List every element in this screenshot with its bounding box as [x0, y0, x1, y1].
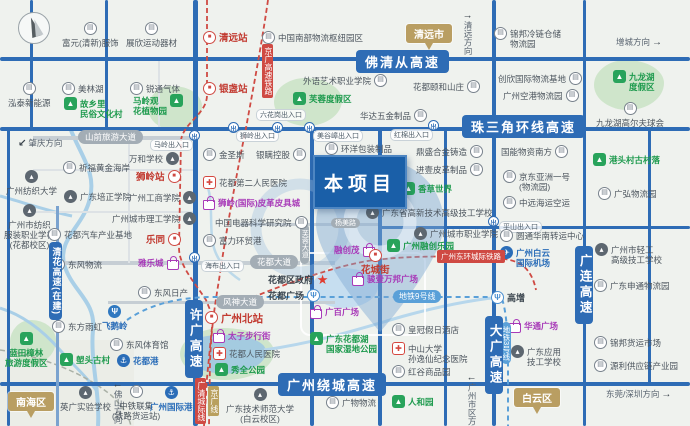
map-poi: ⚓花都港: [117, 354, 159, 367]
highway-label: 清花高速(在建): [49, 242, 62, 320]
factory-icon: ▤: [594, 359, 607, 372]
road-label: 芙蓉大道: [300, 224, 309, 264]
direction-text: 肇庆方向: [28, 137, 62, 149]
hosp-icon: ✚: [213, 347, 226, 360]
poi-label: 九龙湖高尔夫球会: [596, 118, 664, 128]
map-poi: ▲秀全公园: [215, 363, 265, 376]
direction-label: 东莞/深圳方向→: [606, 388, 671, 400]
factory-icon: ▤: [598, 187, 611, 200]
poi-label: 圆通华南转运中心: [516, 231, 584, 241]
map-poi: ▤外语艺术职业学院: [303, 74, 387, 87]
poi-label: 芙蓉度假区: [309, 94, 352, 104]
factory-icon: ▤: [594, 279, 607, 292]
poi-label: 锦邦货运市场: [610, 338, 661, 348]
poi-label: 蓝田樟林 旅游度假区: [5, 348, 48, 368]
exit-icon: 出: [304, 122, 315, 133]
bag-icon: [213, 333, 225, 343]
poi-label: 广东花都湖 国家湿地公园: [326, 334, 377, 354]
factory-icon: ▤: [138, 286, 151, 299]
exit-label: 红棉出入口: [390, 129, 433, 141]
poi-label: 中国南部物流枢纽园区: [278, 33, 363, 43]
map-poi: ▴广州城市理工学院: [112, 212, 196, 225]
poi-label: 广州工商学院: [129, 193, 180, 203]
map-poi: 狮岭(国际)皮革皮具城: [203, 196, 300, 210]
poi-label: 花都区政府: [268, 275, 313, 286]
factory-icon: ▤: [555, 145, 568, 158]
poi-label: 中远海运空运: [519, 198, 570, 208]
poi-label: 银瞒控股: [256, 150, 290, 160]
poi-label: 富力环贸港: [219, 236, 262, 246]
direction-arrow-icon: →: [661, 389, 671, 400]
factory-icon: ▤: [494, 27, 507, 40]
map-poi: ✚中山大学 孙逸仙纪念医院: [392, 342, 468, 364]
factory-icon: ▤: [130, 385, 143, 398]
direction-arrow-icon: →: [652, 37, 662, 48]
poi-label: 祈福黄金海岸: [79, 163, 130, 173]
factory-icon: ▤: [392, 323, 405, 336]
metro-station-icon: Ψ: [307, 289, 320, 302]
exit-label: 六花岗出入口: [256, 109, 306, 121]
exit-label: 狮岭出入口: [236, 130, 279, 142]
map-poi: ▲港头村古村落: [593, 153, 660, 166]
map-poi: ▤锦邦货运市场: [594, 336, 661, 349]
map-poi: ■清远站: [203, 31, 248, 44]
exit-label: 马岭出入口: [150, 139, 193, 151]
map-poi: ▤红谷商品园: [392, 365, 451, 378]
factory-icon: ▤: [470, 163, 483, 176]
star-icon: ★: [316, 273, 329, 286]
map-poi: ▤中远海运空运: [503, 196, 570, 209]
poi-label: 清远站: [219, 33, 248, 44]
map-poi: ▤源利供应链产业园: [594, 359, 678, 372]
tree-icon: ▲: [310, 332, 323, 345]
poi-label: 雅乐城: [138, 258, 164, 268]
factory-icon: ▤: [262, 31, 275, 44]
map-poi: ▤广州空港物流园: [503, 89, 579, 102]
poi-label: 进壹皮革制品: [416, 165, 467, 175]
poi-label: 花都港: [133, 356, 159, 366]
poi-label: 创欣国际物流基地: [498, 74, 566, 84]
rail-station-icon: ■: [168, 233, 181, 246]
highway-label: 许广高速: [185, 300, 203, 378]
poi-label: 香草世界: [418, 184, 452, 194]
factory-icon: ▤: [48, 228, 61, 241]
map-poi: ▤广东申通物流园: [594, 279, 670, 292]
poi-label: 广东应用 技工学校: [527, 347, 561, 367]
map-poi: ▲芙蓉度假区: [293, 92, 352, 105]
map-poi: ▲广东花都湖 国家湿地公园: [310, 332, 377, 354]
factory-icon: ▤: [503, 170, 516, 183]
factory-icon: ▤: [62, 82, 75, 95]
map-poi: ▤创欣国际物流基地: [498, 72, 582, 85]
school-icon: ▴: [595, 243, 608, 256]
direction-arrow-icon: ↓: [466, 376, 477, 381]
map-poi: ▤皇冠假日酒店: [392, 323, 459, 336]
map-poi: Ψ花都广场: [268, 289, 320, 302]
poi-label: 广州融创乐园: [403, 241, 454, 251]
map-poi: Ψ高增: [491, 291, 525, 304]
map-poi: ▴广州纺织大学: [6, 170, 57, 196]
school-icon: ▴: [166, 152, 179, 165]
metro-station-icon: Ψ: [491, 291, 504, 304]
factory-icon: ▤: [566, 89, 579, 102]
map-poi: 骏壹万邦广场: [352, 272, 418, 286]
map-poi: ▤金圣斯: [203, 148, 245, 161]
exit-icon: 出: [189, 130, 200, 141]
highway-label: 珠三角环线高速: [462, 115, 585, 138]
factory-icon: ▤: [326, 396, 339, 409]
school-icon: ▴: [64, 190, 77, 203]
bag-icon: [167, 260, 179, 270]
school-icon: ▴: [25, 170, 38, 183]
map-poi: Ψ飞鹅岭: [102, 305, 128, 331]
map-poi: ▤花都汽车产业基地: [48, 228, 132, 241]
exit-label: 海布出入口: [201, 260, 244, 272]
exit-icon: 出: [272, 122, 283, 133]
city-label: 南海区: [8, 392, 54, 411]
factory-icon: ▤: [63, 161, 76, 174]
factory-icon: ▤: [23, 82, 36, 95]
map-poi: ▴广州工商学院: [129, 191, 196, 204]
map-poi: ▲塱头古村: [60, 353, 110, 366]
highway-label: 广州绕城高速: [278, 373, 386, 396]
location-map: 佛清从高速珠三角环线高速广州绕城高速许广高速大广高速广连高速清花高速(在建)京广…: [0, 0, 690, 426]
railway-label: 广州东环城际铁路: [437, 250, 505, 263]
direction-text: 增城方向: [616, 36, 650, 48]
map-poi: ▴广州市轻工 高级技工学校: [595, 243, 662, 265]
tree-icon: ▲: [60, 353, 73, 366]
road-label: 风神大道: [216, 295, 264, 309]
poi-label: 广州城市理工学院: [112, 214, 180, 224]
exit-icon: 出: [189, 252, 200, 263]
poi-label: 外语艺术职业学院: [303, 76, 371, 86]
map-poi: ▲九龙湖 度假区: [613, 70, 655, 92]
poi-label: 广州城市职业学院: [430, 229, 498, 239]
bag-icon: [352, 276, 364, 286]
factory-icon: ▤: [325, 142, 338, 155]
factory-icon: ▤: [374, 74, 387, 87]
metro-station-icon: Ψ: [108, 305, 121, 318]
factory-icon: ▤: [470, 145, 483, 158]
tree-icon: ▲: [593, 153, 606, 166]
poi-label: 东方雨虹: [68, 322, 102, 332]
direction-label: 增城方向→: [616, 36, 662, 48]
map-poi: ▤东风体育馆: [110, 338, 169, 351]
poi-label: 塱头古村: [76, 355, 110, 365]
poi-label: 美林湖: [78, 84, 104, 94]
poi-label: 广州国际港: [150, 402, 193, 412]
tree-icon: ▲: [613, 70, 626, 83]
map-poi: ▤锦邦冷链仓储 物流园: [494, 27, 561, 49]
map-poi: ▲人和园: [392, 395, 434, 408]
poi-label: 狮岭(国际)皮革皮具城: [218, 198, 300, 208]
bag-icon: [310, 309, 322, 319]
map-poi: ▴广东应用 技工学校: [511, 345, 561, 367]
poi-label: 融创茂: [334, 245, 360, 255]
poi-label: 广弘物流园: [614, 189, 657, 199]
hosp-icon: ✚: [392, 342, 405, 355]
poi-label: 锐通气体: [146, 84, 180, 94]
poi-label: 高增: [507, 293, 525, 304]
poi-label: 广州白云 国际机场: [516, 248, 550, 268]
tree-icon: ▲: [392, 395, 405, 408]
school-icon: ▴: [23, 204, 36, 217]
map-poi: ▤东方雨虹: [52, 320, 102, 333]
tree-icon: ▲: [215, 363, 228, 376]
rail-station-icon: ■: [168, 170, 181, 183]
poi-label: 展欣运动器材: [126, 38, 177, 48]
map-poi: ▤鼎盛合金铸造: [416, 145, 483, 158]
map-poi: ■银盏站: [203, 82, 248, 95]
direction-arrow-icon: ↙: [18, 138, 26, 149]
factory-icon: ▤: [392, 365, 405, 378]
tree-icon: ▲: [293, 92, 306, 105]
direction-arrow-icon: ↑: [462, 14, 473, 19]
railway-label: 京广高速铁路: [262, 44, 273, 98]
factory-icon: ▤: [295, 216, 308, 229]
map-poi: 太子步行街: [213, 329, 271, 343]
road-label: 杨美路: [331, 218, 360, 228]
poi-label: 广物物流: [342, 398, 376, 408]
poi-label: 环洋包装制品: [341, 144, 392, 154]
city-label: 白云区: [514, 388, 560, 407]
highway-label: 佛清从高速: [356, 50, 449, 73]
poi-label: 东风物流: [68, 260, 102, 270]
poi-label: 银盏站: [219, 84, 248, 95]
poi-label: 金圣斯: [219, 150, 245, 160]
map-poi: ⚓广州国际港: [150, 386, 193, 412]
map-poi: ■广州北站: [205, 311, 263, 325]
factory-icon: ▤: [569, 72, 582, 85]
poi-label: 京东亚洲一号 (物流园): [519, 172, 570, 192]
factory-icon: ▤: [203, 234, 216, 247]
factory-icon: ▤: [203, 148, 216, 161]
map-poi: ▤泓泰新能源: [8, 82, 51, 108]
rail-station-icon: ■: [203, 31, 216, 44]
rail-station-icon: ■: [205, 311, 218, 324]
map-poi: ■乐同: [146, 233, 181, 246]
bag-icon: [203, 200, 215, 210]
poi-label: 秀全公园: [231, 365, 265, 375]
poi-label: 飞鹅岭: [102, 321, 128, 331]
school-icon: ▴: [183, 212, 196, 225]
direction-text: 广州市区方向: [467, 383, 476, 426]
poi-label: 华达五金制品: [360, 111, 411, 121]
map-poi: ▲蓝田樟林 旅游度假区: [5, 332, 48, 368]
poi-label: 人和园: [408, 397, 434, 407]
poi-label: 九龙湖 度假区: [629, 72, 655, 92]
map-poi: ▤华达五金制品: [360, 109, 427, 122]
poi-label: 花都颐和山庄: [413, 82, 464, 92]
factory-icon: ▤: [467, 80, 480, 93]
poi-label: 万和学校: [129, 154, 163, 164]
road-label: 山前旅游大道: [78, 130, 143, 144]
exit-icon: 出: [428, 120, 439, 131]
map-poi: ▤环洋包装制品: [325, 142, 392, 155]
project-marker: 本项目: [313, 155, 407, 209]
map-poi: ▴万和学校: [129, 152, 179, 165]
poi-label: 花都第二人民医院: [219, 178, 287, 188]
poi-label: 东风体育馆: [126, 340, 169, 350]
poi-label: 乐同: [146, 235, 165, 246]
poi-label: 锦邦冷链仓储 物流园: [510, 29, 561, 49]
factory-icon: ▤: [52, 320, 65, 333]
map-poi: ▴英广实验学校: [60, 386, 111, 412]
poi-label: 泓泰新能源: [8, 98, 51, 108]
direction-label: ↑清远方向: [462, 14, 473, 55]
map-poi: 华通广场: [509, 319, 558, 333]
map-poi: ▤国能物资南方: [501, 145, 568, 158]
direction-label: ↓广州市区方向: [466, 376, 477, 426]
poi-label: 广州市轻工 高级技工学校: [611, 245, 662, 265]
map-poi: ▤美林湖: [62, 82, 104, 95]
map-poi: ▤花都颐和山庄: [413, 80, 480, 93]
map-poi: ✚花都第二人民医院: [203, 176, 287, 189]
rail-station-icon: ■: [203, 82, 216, 95]
road-label: 花都大道: [250, 255, 298, 269]
map-poi: ▤广弘物流园: [598, 187, 657, 200]
poi-label: 广东培正学院: [80, 192, 131, 202]
compass-icon: [18, 12, 50, 44]
poi-label: 华通广场: [524, 321, 558, 331]
factory-icon: ▤: [145, 22, 158, 35]
map-poi: ▲故乡里 民俗文化村: [64, 97, 123, 119]
map-poi: ▤富力环贸港: [203, 234, 262, 247]
poi-label: 源利供应链产业园: [610, 361, 678, 371]
exit-icon: 出: [228, 122, 239, 133]
map-poi: ▤进壹皮革制品: [416, 163, 483, 176]
map-poi: ▤九龙湖高尔夫球会: [596, 102, 664, 128]
map-poi: 雅乐城: [138, 256, 179, 270]
map-poi: ▴广东培正学院: [64, 190, 131, 203]
poi-label: 广百广场: [325, 307, 359, 317]
map-poi: ▤祈福黄金海岸: [63, 161, 130, 174]
map-poi: ▤中国电器科学研究院: [215, 216, 308, 229]
map-poi: ▤圆通华南转运中心: [500, 229, 584, 242]
poi-label: 花都广场: [268, 291, 304, 302]
poi-label: 狮岭站: [136, 172, 165, 183]
railway-label: 京广线: [208, 386, 219, 416]
poi-label: 港头村古村落: [609, 155, 660, 165]
poi-label: 花都人民医院: [229, 349, 280, 359]
poi-label: 中山大学 孙逸仙纪念医院: [408, 344, 468, 364]
map-poi: ✚花都人民医院: [213, 347, 280, 360]
poi-label: 红谷商品园: [408, 367, 451, 377]
anchor-icon: ⚓: [117, 354, 130, 367]
poi-label: 马岭观 花植物园: [133, 96, 167, 116]
map-poi: ▤东风日产: [138, 286, 188, 299]
city-label: 清远市: [406, 24, 452, 43]
factory-icon: ▤: [594, 336, 607, 349]
poi-label: 骏壹万邦广场: [367, 274, 418, 284]
poi-label: 广东省高新技术高级技工学校: [382, 208, 493, 218]
poi-label: 鼎盛合金铸造: [416, 147, 467, 157]
map-poi: ✈广州白云 国际机场: [500, 246, 550, 268]
highway-label: 大广高速: [485, 316, 503, 394]
factory-icon: ▤: [624, 102, 637, 115]
factory-icon: ▤: [293, 148, 306, 161]
school-icon: ▴: [79, 386, 92, 399]
map-poi: ▲马岭观 花植物园: [133, 94, 183, 116]
poi-label: 广州空港物流园: [503, 91, 563, 101]
map-poi: ■狮岭站: [136, 170, 181, 183]
poi-label: 中国电器科学研究院: [215, 218, 292, 228]
map-poi: ▤富元(清新)服饰: [62, 22, 119, 48]
exit-label: 美谷嶂出入口: [313, 130, 363, 142]
map-poi: ▤中国南部物流枢纽园区: [262, 31, 363, 44]
factory-icon: ▤: [503, 196, 516, 209]
map-poi: ▲香草世界: [402, 182, 452, 195]
poi-label: 东风日产: [154, 288, 188, 298]
factory-icon: ▤: [84, 22, 97, 35]
direction-text: 清远方向: [463, 21, 472, 55]
poi-label: 广东申通物流园: [610, 281, 670, 291]
map-poi: ▤展欣运动器材: [126, 22, 177, 48]
poi-label: 国能物资南方: [501, 147, 552, 157]
direction-label: ↙肇庆方向: [18, 137, 62, 149]
poi-label: 英广实验学校: [60, 402, 111, 412]
tree-icon: ▲: [20, 332, 33, 345]
map-poi: ▤广物物流: [326, 396, 376, 409]
poi-label: 富元(清新)服饰: [62, 38, 119, 48]
direction-text: 东莞/深圳方向: [606, 388, 659, 400]
poi-label: 花都汽车产业基地: [64, 230, 132, 240]
railway-label: 广清城际线: [195, 378, 206, 424]
poi-label: 广州北站: [221, 313, 263, 325]
factory-icon: ▤: [110, 338, 123, 351]
map-poi: 广百广场: [310, 305, 359, 319]
factory-icon: ▤: [414, 109, 427, 122]
map-poi: ★花都区政府: [268, 273, 329, 286]
school-icon: ▴: [183, 191, 196, 204]
poi-label: 太子步行街: [228, 331, 271, 341]
tree-icon: ▲: [64, 97, 77, 110]
tree-icon: ▲: [170, 94, 183, 107]
metro-line-label: 地铁9号线: [393, 290, 441, 303]
map-poi: ▴广州市纺织 服装职业学校 (花都校区): [4, 204, 55, 250]
poi-label: 广东技术师范大学 (白云校区): [226, 404, 294, 424]
school-icon: ▴: [511, 345, 524, 358]
hosp-icon: ✚: [203, 176, 216, 189]
poi-label: 皇冠假日酒店: [408, 325, 459, 335]
map-poi: ▤银瞒控股: [256, 148, 306, 161]
rail-station-icon: ■: [369, 249, 382, 262]
anchor-icon: ⚓: [165, 386, 178, 399]
poi-label: 故乡里 民俗文化村: [80, 99, 123, 119]
highway-label: 广连高速: [575, 246, 593, 324]
school-icon: ▴: [254, 388, 267, 401]
poi-label: 广州纺织大学: [6, 186, 57, 196]
map-poi: ▤京东亚洲一号 (物流园): [503, 170, 570, 192]
factory-icon: ▤: [500, 229, 513, 242]
